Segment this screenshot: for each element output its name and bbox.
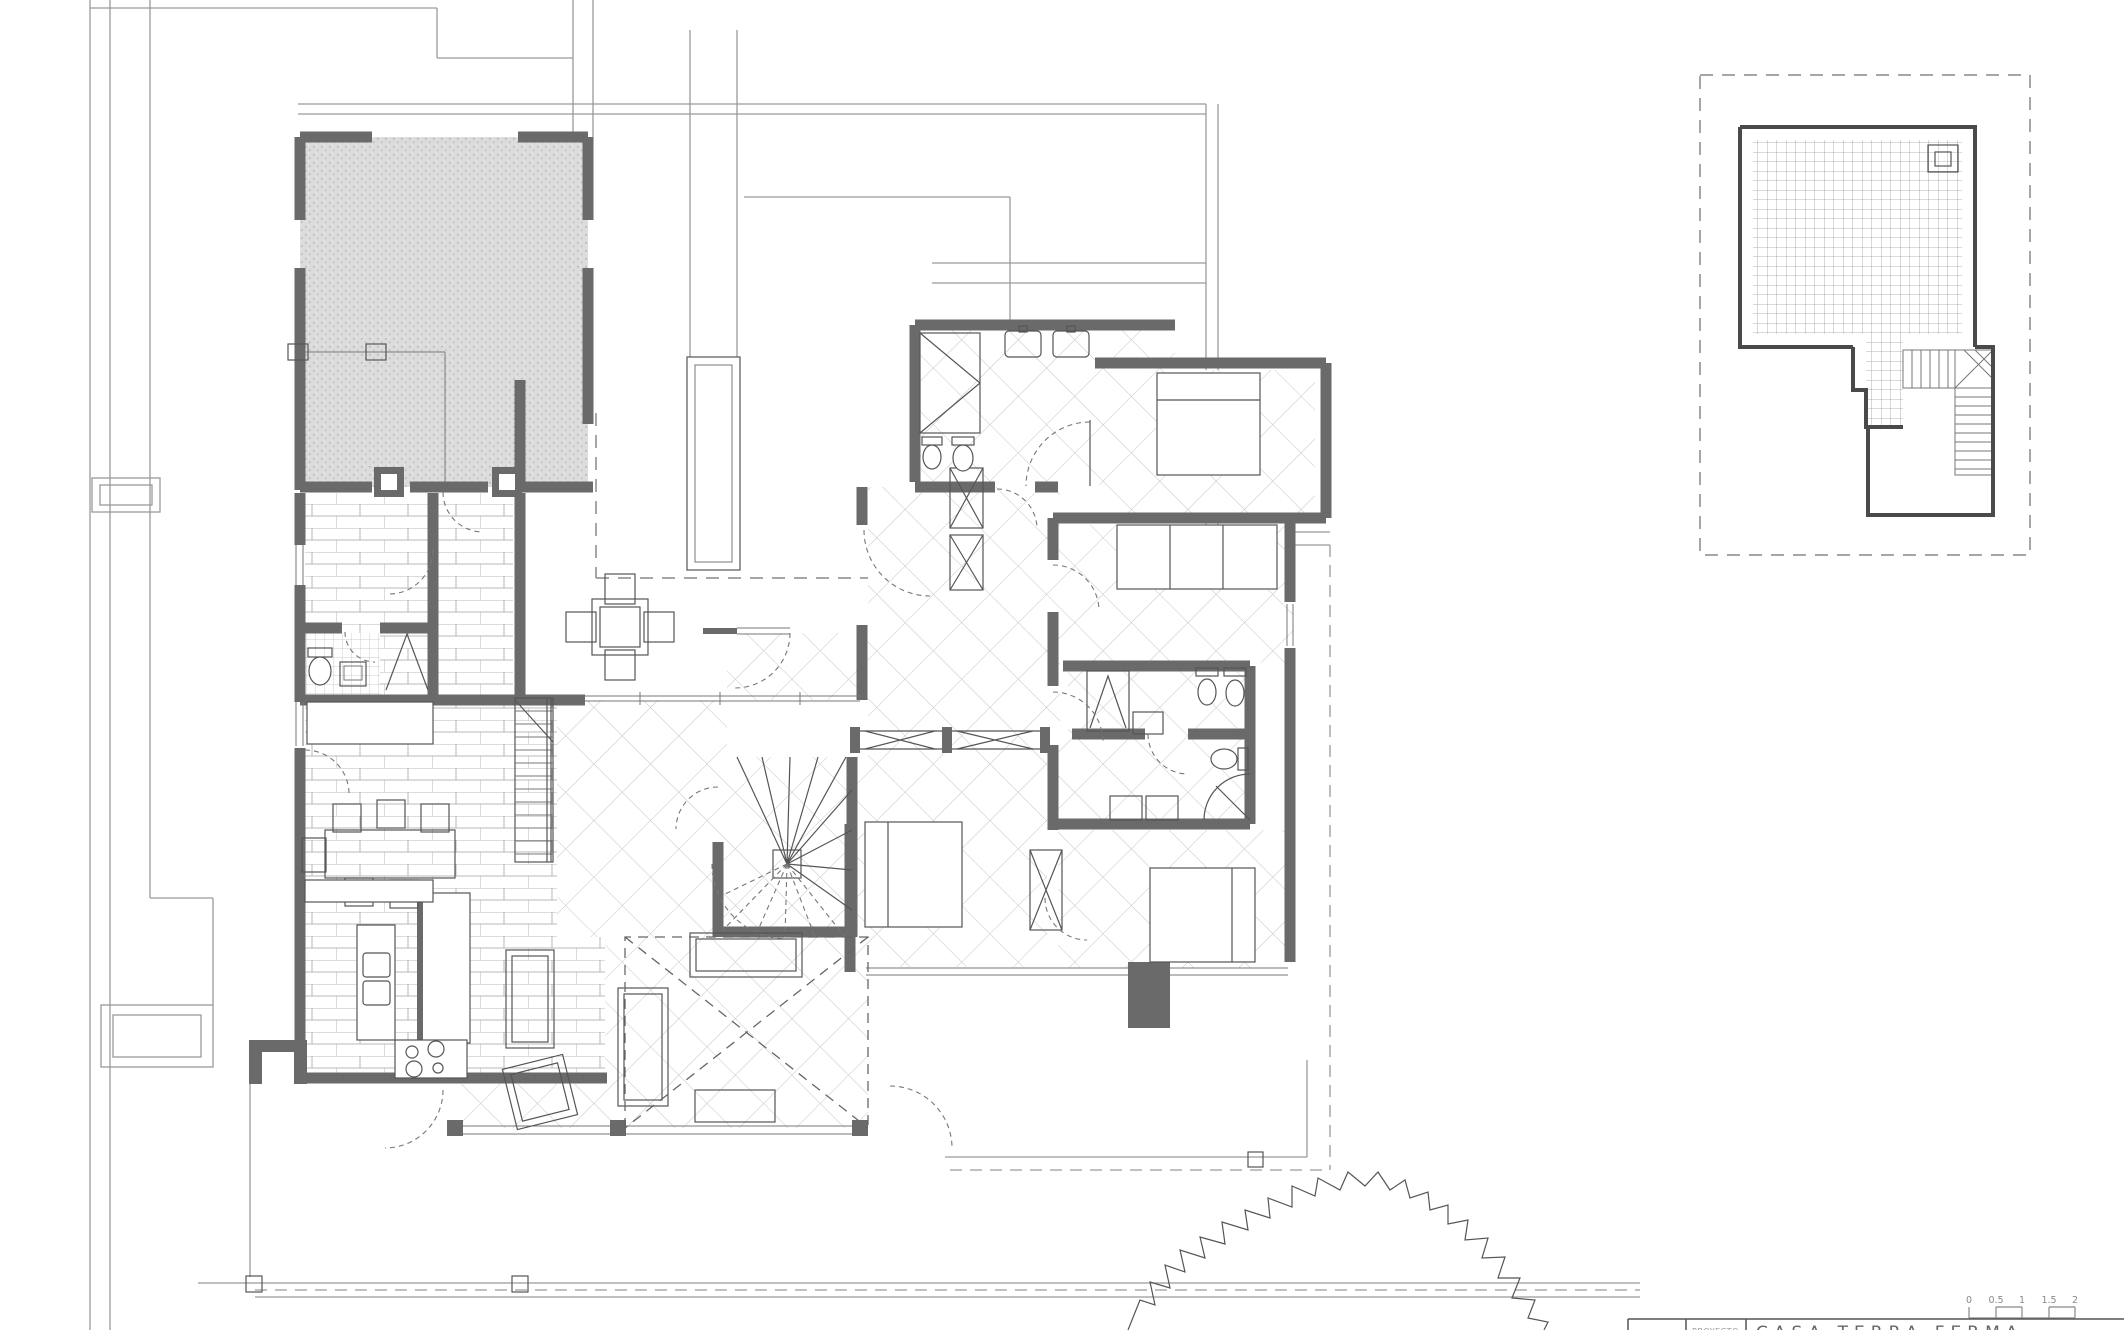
floor-plan-sheet: 0 0.5 1 1.5 2 PROYECTO CASA TERRA FERMA — [0, 0, 2124, 1330]
lightwell-window — [687, 357, 740, 570]
vestibule-floor — [727, 633, 870, 700]
patio-stipple-floor — [300, 137, 588, 487]
roof-stair — [1903, 350, 1993, 475]
bathroom2-floor — [1068, 666, 1253, 738]
title-block-project-name: CASA TERRA FERMA — [1756, 1323, 2023, 1330]
scale-label-2: 2 — [2072, 1295, 2078, 1306]
scale-bar: 0 0.5 1 1.5 2 — [1966, 1295, 2078, 1318]
roof-plan-inset — [1700, 75, 2030, 555]
title-block: PROYECTO CASA TERRA FERMA — [1628, 1319, 2124, 1330]
fireplace-mass — [420, 893, 470, 1043]
scale-label-05: 0.5 — [1988, 1295, 2003, 1306]
courtyard-table — [566, 574, 674, 680]
roof-terrace-grid — [1753, 140, 1962, 334]
scale-label-1: 1 — [2019, 1295, 2025, 1306]
tree-canopy — [1128, 1172, 1548, 1330]
scale-label-15: 1.5 — [2041, 1295, 2056, 1306]
plan-svg: 0 0.5 1 1.5 2 PROYECTO CASA TERRA FERMA — [0, 0, 2124, 1330]
glazing-pier — [1128, 962, 1170, 1028]
fence-post — [1248, 1152, 1263, 1167]
scale-label-0: 0 — [1966, 1295, 1972, 1306]
